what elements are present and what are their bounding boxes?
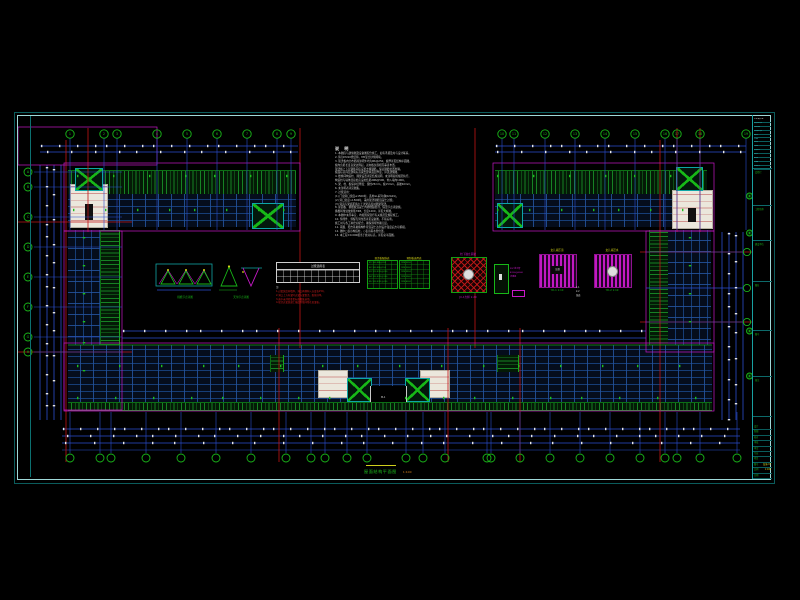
- detail-pipe-column: PVC排水管Φ100@6000详建施: [494, 262, 530, 302]
- material-table: 过梁选用表: [276, 262, 360, 283]
- titleblock-divider: [753, 416, 772, 417]
- sheet-binding-margin: [30, 116, 31, 477]
- detail-column-base-top-label: 柱下独立基础: [447, 252, 489, 256]
- pipe-column-mark: [499, 274, 502, 280]
- titleblock-cell-label: 图名: [755, 283, 759, 287]
- titleblock-divider: [753, 330, 772, 331]
- detail-parapet-flashing: 女儿墙泛水 YD-2 1:10: [591, 248, 633, 304]
- titleblock-cell-label: 会签栏: [755, 170, 762, 174]
- parapet2-center-circle: [607, 266, 618, 277]
- note-line: 13. 本工程±0.000相当于绝对标高，详见总平面图。: [335, 234, 451, 238]
- titleblock-cell-label: 建设单位: [755, 242, 764, 246]
- pipe-labels: PVC排水管Φ100@6000详建施: [510, 268, 523, 279]
- table-row: B5 120 Φ12@200: [369, 281, 387, 283]
- detail-eave-node: 挑檐节点详图: [155, 260, 215, 302]
- detail-column-base-bottom-label: JC-1大样 1:20: [447, 295, 489, 299]
- drawing-title-text: 屋面结构平面图: [364, 469, 397, 474]
- titleblock-cell-label: 工程名称: [755, 207, 764, 211]
- drawing-title: 屋面结构平面图1:100: [364, 458, 411, 477]
- table-row: B3 110 Φ10@200: [369, 271, 387, 273]
- material-table-notes: 注:1.过梁宽度同墙厚，洞口两侧伸入长度各250。2.洞口上方有梁时过梁与梁整浇…: [276, 286, 358, 305]
- titleblock-divider: [753, 281, 772, 282]
- table-row: B4 120 Φ10@150: [369, 276, 387, 278]
- column-base-center: [463, 269, 474, 280]
- section-mark: 剖面: [576, 294, 580, 298]
- parapet1-top-label: 女儿墙压顶: [536, 248, 578, 252]
- slab-rebar-table: 现浇板配筋表 B1 100 Φ8@200B2 100 Φ8@150B3 110 …: [367, 256, 397, 289]
- cad-drawing-canvas[interactable]: 12345678910111213141516171819ABCDEFGH ××…: [0, 0, 800, 600]
- table-row: YKB 3352: [401, 262, 411, 264]
- detail-parapet-coping: 女儿墙压顶 压顶 YD-1 1:10: [536, 248, 578, 304]
- entry-door-label: M-1: [381, 396, 385, 399]
- titleblock-sign-row: 日期: [753, 473, 772, 479]
- titleblock-cell-label: 备注: [755, 378, 759, 382]
- precast-slab-table: 预制板选用表 YKB 3352YKB 3362YKB 3952YKB 3962Y…: [399, 256, 429, 289]
- parapet1-center-tag: 压顶: [551, 266, 564, 274]
- parapet2-top-label: 女儿墙泛水: [591, 248, 633, 252]
- titleblock-cell-label: 图号: [755, 332, 759, 336]
- material-table-title: 过梁选用表: [277, 263, 359, 270]
- detail-gutter-node-label: 天沟节点详图: [217, 295, 265, 299]
- titleblock-divider: [753, 240, 772, 241]
- pipe-label: 详建施: [510, 276, 523, 280]
- parapet2-bottom-label: YD-2 1:10: [591, 289, 633, 292]
- title-block: ××设计院资质证书注册章修改记录版次日期签名专业负责人审定批准出图存档号会签栏工…: [752, 115, 772, 479]
- titleblock-divider: [753, 168, 772, 169]
- table-row: B2 100 Φ8@150: [369, 267, 386, 269]
- parapet1-bottom-label: YD-1 1:10: [536, 289, 578, 292]
- detail-gutter-node: 天沟节点详图: [217, 260, 265, 302]
- general-notes: 说 明 1. 本图应与建施图及设备图配合施工，如有矛盾及时与设计联系。2. 砖为…: [335, 146, 451, 238]
- drawing-scale: 1:100: [403, 470, 412, 474]
- material-note-line: 4.现浇过梁混凝土强度等级同所在层梁板。: [276, 301, 358, 305]
- pipe-box-mark: [512, 290, 525, 297]
- table-row: YKB 3952: [401, 271, 411, 273]
- table-row: B1 100 Φ8@200: [369, 262, 386, 264]
- title-underline: [366, 465, 396, 466]
- titleblock-divider: [753, 376, 772, 377]
- sign-row-label: 日期: [754, 473, 758, 478]
- detail-eave-node-label: 挑檐节点详图: [155, 295, 215, 299]
- table-row: YKB 3362: [401, 267, 411, 269]
- detail-column-base: 柱下独立基础 JC-1大样 1:20: [447, 252, 489, 304]
- table-row: YKB 3962: [401, 276, 411, 278]
- titleblock-divider: [753, 205, 772, 206]
- table-row: YKB 4262: [401, 281, 411, 283]
- pipe-label: Φ100@6000: [510, 272, 523, 276]
- material-table-grid: [277, 270, 359, 282]
- section-marks: 1-12-2剖面: [576, 286, 580, 299]
- material-table-block: 过梁选用表 注:1.过梁宽度同墙厚，洞口两侧伸入长度各250。2.洞口上方有梁时…: [276, 262, 358, 305]
